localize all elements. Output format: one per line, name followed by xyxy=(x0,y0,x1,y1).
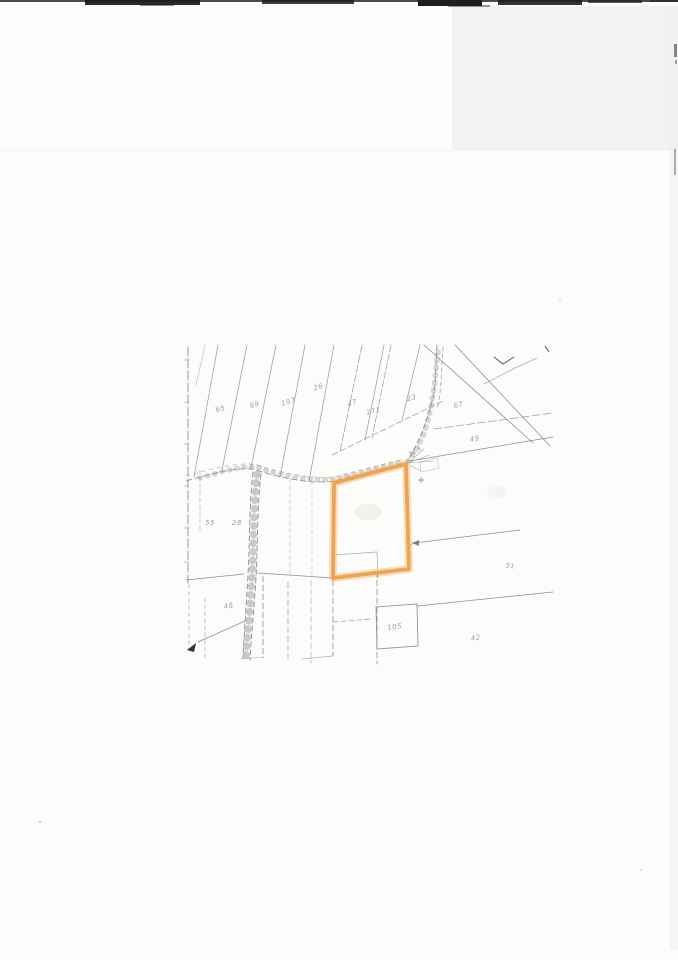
parcel-label-197: 197 xyxy=(280,396,296,407)
scan-specks xyxy=(39,299,642,871)
field-strip-lines xyxy=(194,345,420,481)
parcel-label-48: 48 xyxy=(223,601,234,611)
parcel-label-271: 271 xyxy=(366,405,381,416)
ne-diagonal-road xyxy=(424,345,550,446)
parcel-label-49: 49 xyxy=(469,434,480,444)
parcel-label-67: 67 xyxy=(453,400,465,410)
scanned-map-page: 6599197264727123674976.55528485110542 xyxy=(0,0,678,960)
scan-right-edge-marks xyxy=(674,44,677,175)
lower-parcels xyxy=(198,571,418,664)
lower-boundary xyxy=(186,573,333,580)
parcel-label-23: 23 xyxy=(406,393,418,403)
corner-check-mark xyxy=(494,357,514,364)
southwest-arrow-mark xyxy=(187,643,196,652)
plus-mark xyxy=(418,477,424,483)
road-hatching xyxy=(408,352,438,461)
parcel-label-47: 47 xyxy=(346,398,358,409)
parcel-label-105: 105 xyxy=(387,622,403,632)
parcel-label-65: 65 xyxy=(215,404,227,414)
parcel-label-28: 28 xyxy=(232,519,242,527)
scan-top-edge xyxy=(0,0,678,7)
parcel-label-42: 42 xyxy=(470,633,481,642)
tick-mark xyxy=(545,346,549,352)
cadastral-map-scan: 6599197264727123674976.55528485110542 xyxy=(0,0,678,960)
pencil-smudges xyxy=(354,486,507,520)
parcel-label-51: 51 xyxy=(505,561,515,570)
parcel-label-99: 99 xyxy=(249,400,261,410)
survey-marks xyxy=(187,346,549,652)
parcel-label-55: 55 xyxy=(205,519,215,527)
highlight-stroke xyxy=(333,464,409,578)
highlighted-parcel xyxy=(333,464,409,578)
vertical-lane-road xyxy=(243,472,261,660)
middle-parcel-dividers xyxy=(290,479,312,577)
map-left-border xyxy=(184,347,200,655)
parcel-label-26: 26 xyxy=(312,382,324,393)
left-arrowhead-mark xyxy=(412,540,419,546)
lane-rungs xyxy=(246,474,257,660)
